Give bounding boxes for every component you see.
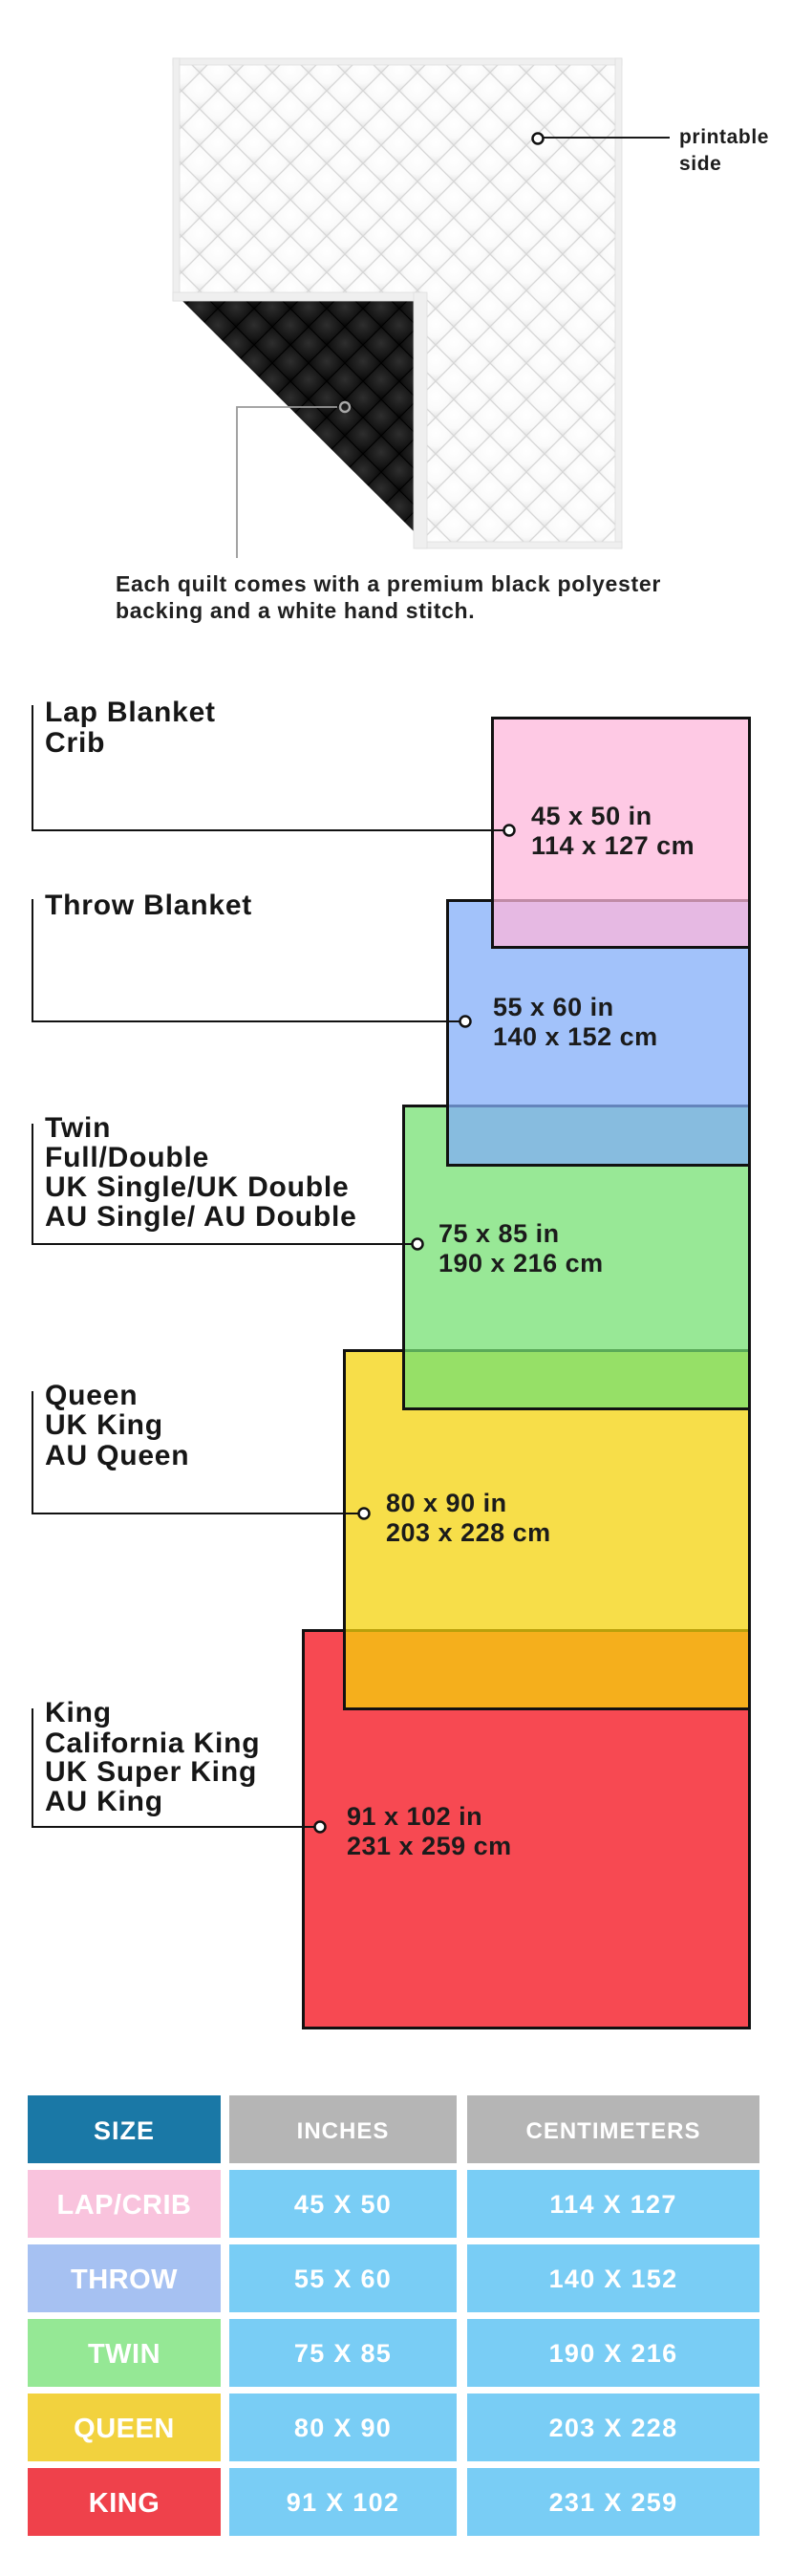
svg-text:California King: California King: [45, 1728, 260, 1759]
svg-text:80 X 90: 80 X 90: [294, 2414, 392, 2442]
svg-text:side: side: [679, 153, 721, 175]
svg-text:45 X 50: 45 X 50: [294, 2190, 392, 2219]
svg-text:Crib: Crib: [45, 727, 105, 759]
svg-text:Each quilt comes with a premiu: Each quilt comes with a premium black po…: [116, 571, 661, 596]
svg-text:AU Queen: AU Queen: [45, 1440, 189, 1471]
svg-text:Lap Blanket: Lap Blanket: [45, 697, 216, 728]
svg-text:AU King: AU King: [45, 1786, 163, 1817]
svg-text:Queen: Queen: [45, 1380, 138, 1411]
svg-text:AU Single/ AU Double: AU Single/ AU Double: [45, 1201, 357, 1233]
svg-text:140 X 152: 140 X 152: [549, 2265, 678, 2293]
svg-text:203 x 228 cm: 203 x 228 cm: [386, 1518, 551, 1547]
svg-text:55 X 60: 55 X 60: [294, 2265, 392, 2293]
svg-text:114 X 127: 114 X 127: [549, 2190, 676, 2219]
svg-text:LAP/CRIB: LAP/CRIB: [57, 2190, 192, 2221]
svg-text:printable: printable: [679, 126, 769, 148]
svg-text:INCHES: INCHES: [297, 2118, 390, 2144]
svg-text:91 x 102 in: 91 x 102 in: [347, 1802, 482, 1831]
svg-text:Throw Blanket: Throw Blanket: [45, 890, 252, 921]
svg-text:TWIN: TWIN: [88, 2339, 160, 2370]
svg-text:231 X 259: 231 X 259: [549, 2488, 678, 2517]
svg-text:Twin: Twin: [45, 1112, 111, 1144]
svg-text:UK Single/UK Double: UK Single/UK Double: [45, 1171, 350, 1203]
svg-text:backing and a white hand stitc: backing and a white hand stitch.: [116, 598, 475, 623]
svg-text:SIZE: SIZE: [94, 2116, 155, 2145]
svg-text:231 x 259 cm: 231 x 259 cm: [347, 1832, 512, 1860]
svg-text:UK King: UK King: [45, 1409, 163, 1441]
svg-text:190 X 216: 190 X 216: [549, 2339, 678, 2368]
svg-text:CENTIMETERS: CENTIMETERS: [525, 2118, 700, 2144]
svg-text:91 X 102: 91 X 102: [287, 2488, 400, 2517]
svg-text:203 X 228: 203 X 228: [549, 2414, 678, 2442]
svg-text:KING: KING: [89, 2488, 160, 2519]
svg-text:140 x 152 cm: 140 x 152 cm: [493, 1022, 658, 1051]
svg-text:QUEEN: QUEEN: [74, 2414, 175, 2444]
svg-text:75 X 85: 75 X 85: [294, 2339, 392, 2368]
svg-text:80 x 90 in: 80 x 90 in: [386, 1489, 507, 1517]
svg-text:King: King: [45, 1697, 112, 1728]
svg-text:114 x 127 cm: 114 x 127 cm: [531, 831, 695, 860]
svg-text:190 x 216 cm: 190 x 216 cm: [438, 1249, 604, 1277]
svg-text:THROW: THROW: [71, 2265, 178, 2295]
svg-text:75 x 85 in: 75 x 85 in: [438, 1219, 560, 1248]
svg-text:Full/Double: Full/Double: [45, 1142, 209, 1173]
svg-text:55 x 60 in: 55 x 60 in: [493, 993, 614, 1021]
svg-text:45 x 50 in: 45 x 50 in: [531, 802, 652, 830]
svg-text:UK Super King: UK Super King: [45, 1756, 257, 1788]
